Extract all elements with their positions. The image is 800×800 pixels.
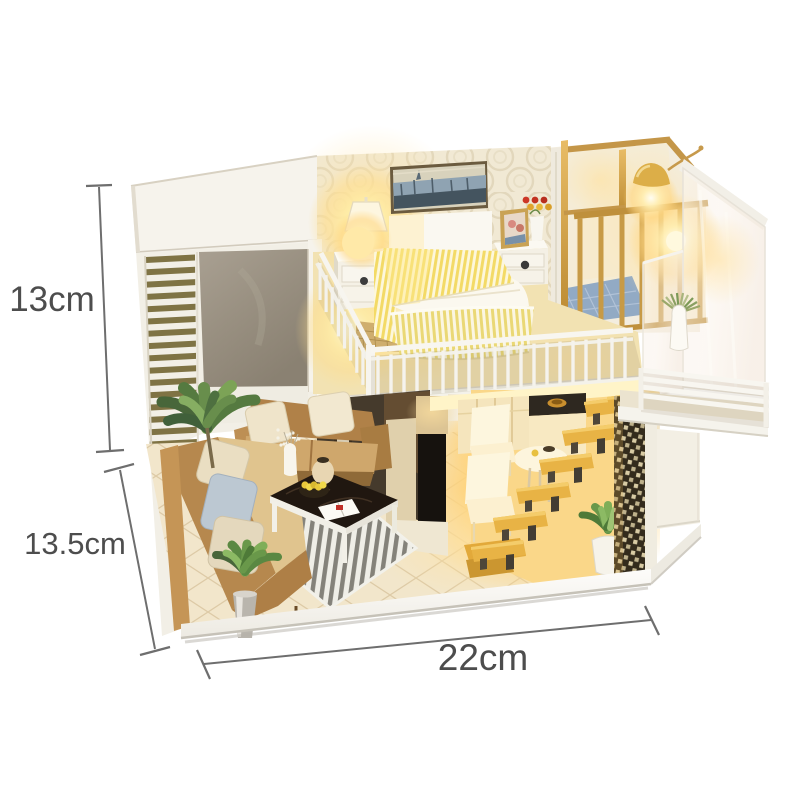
svg-text:13cm: 13cm	[9, 280, 95, 319]
svg-text:22cm: 22cm	[438, 637, 528, 678]
svg-text:13.5cm: 13.5cm	[24, 526, 126, 561]
